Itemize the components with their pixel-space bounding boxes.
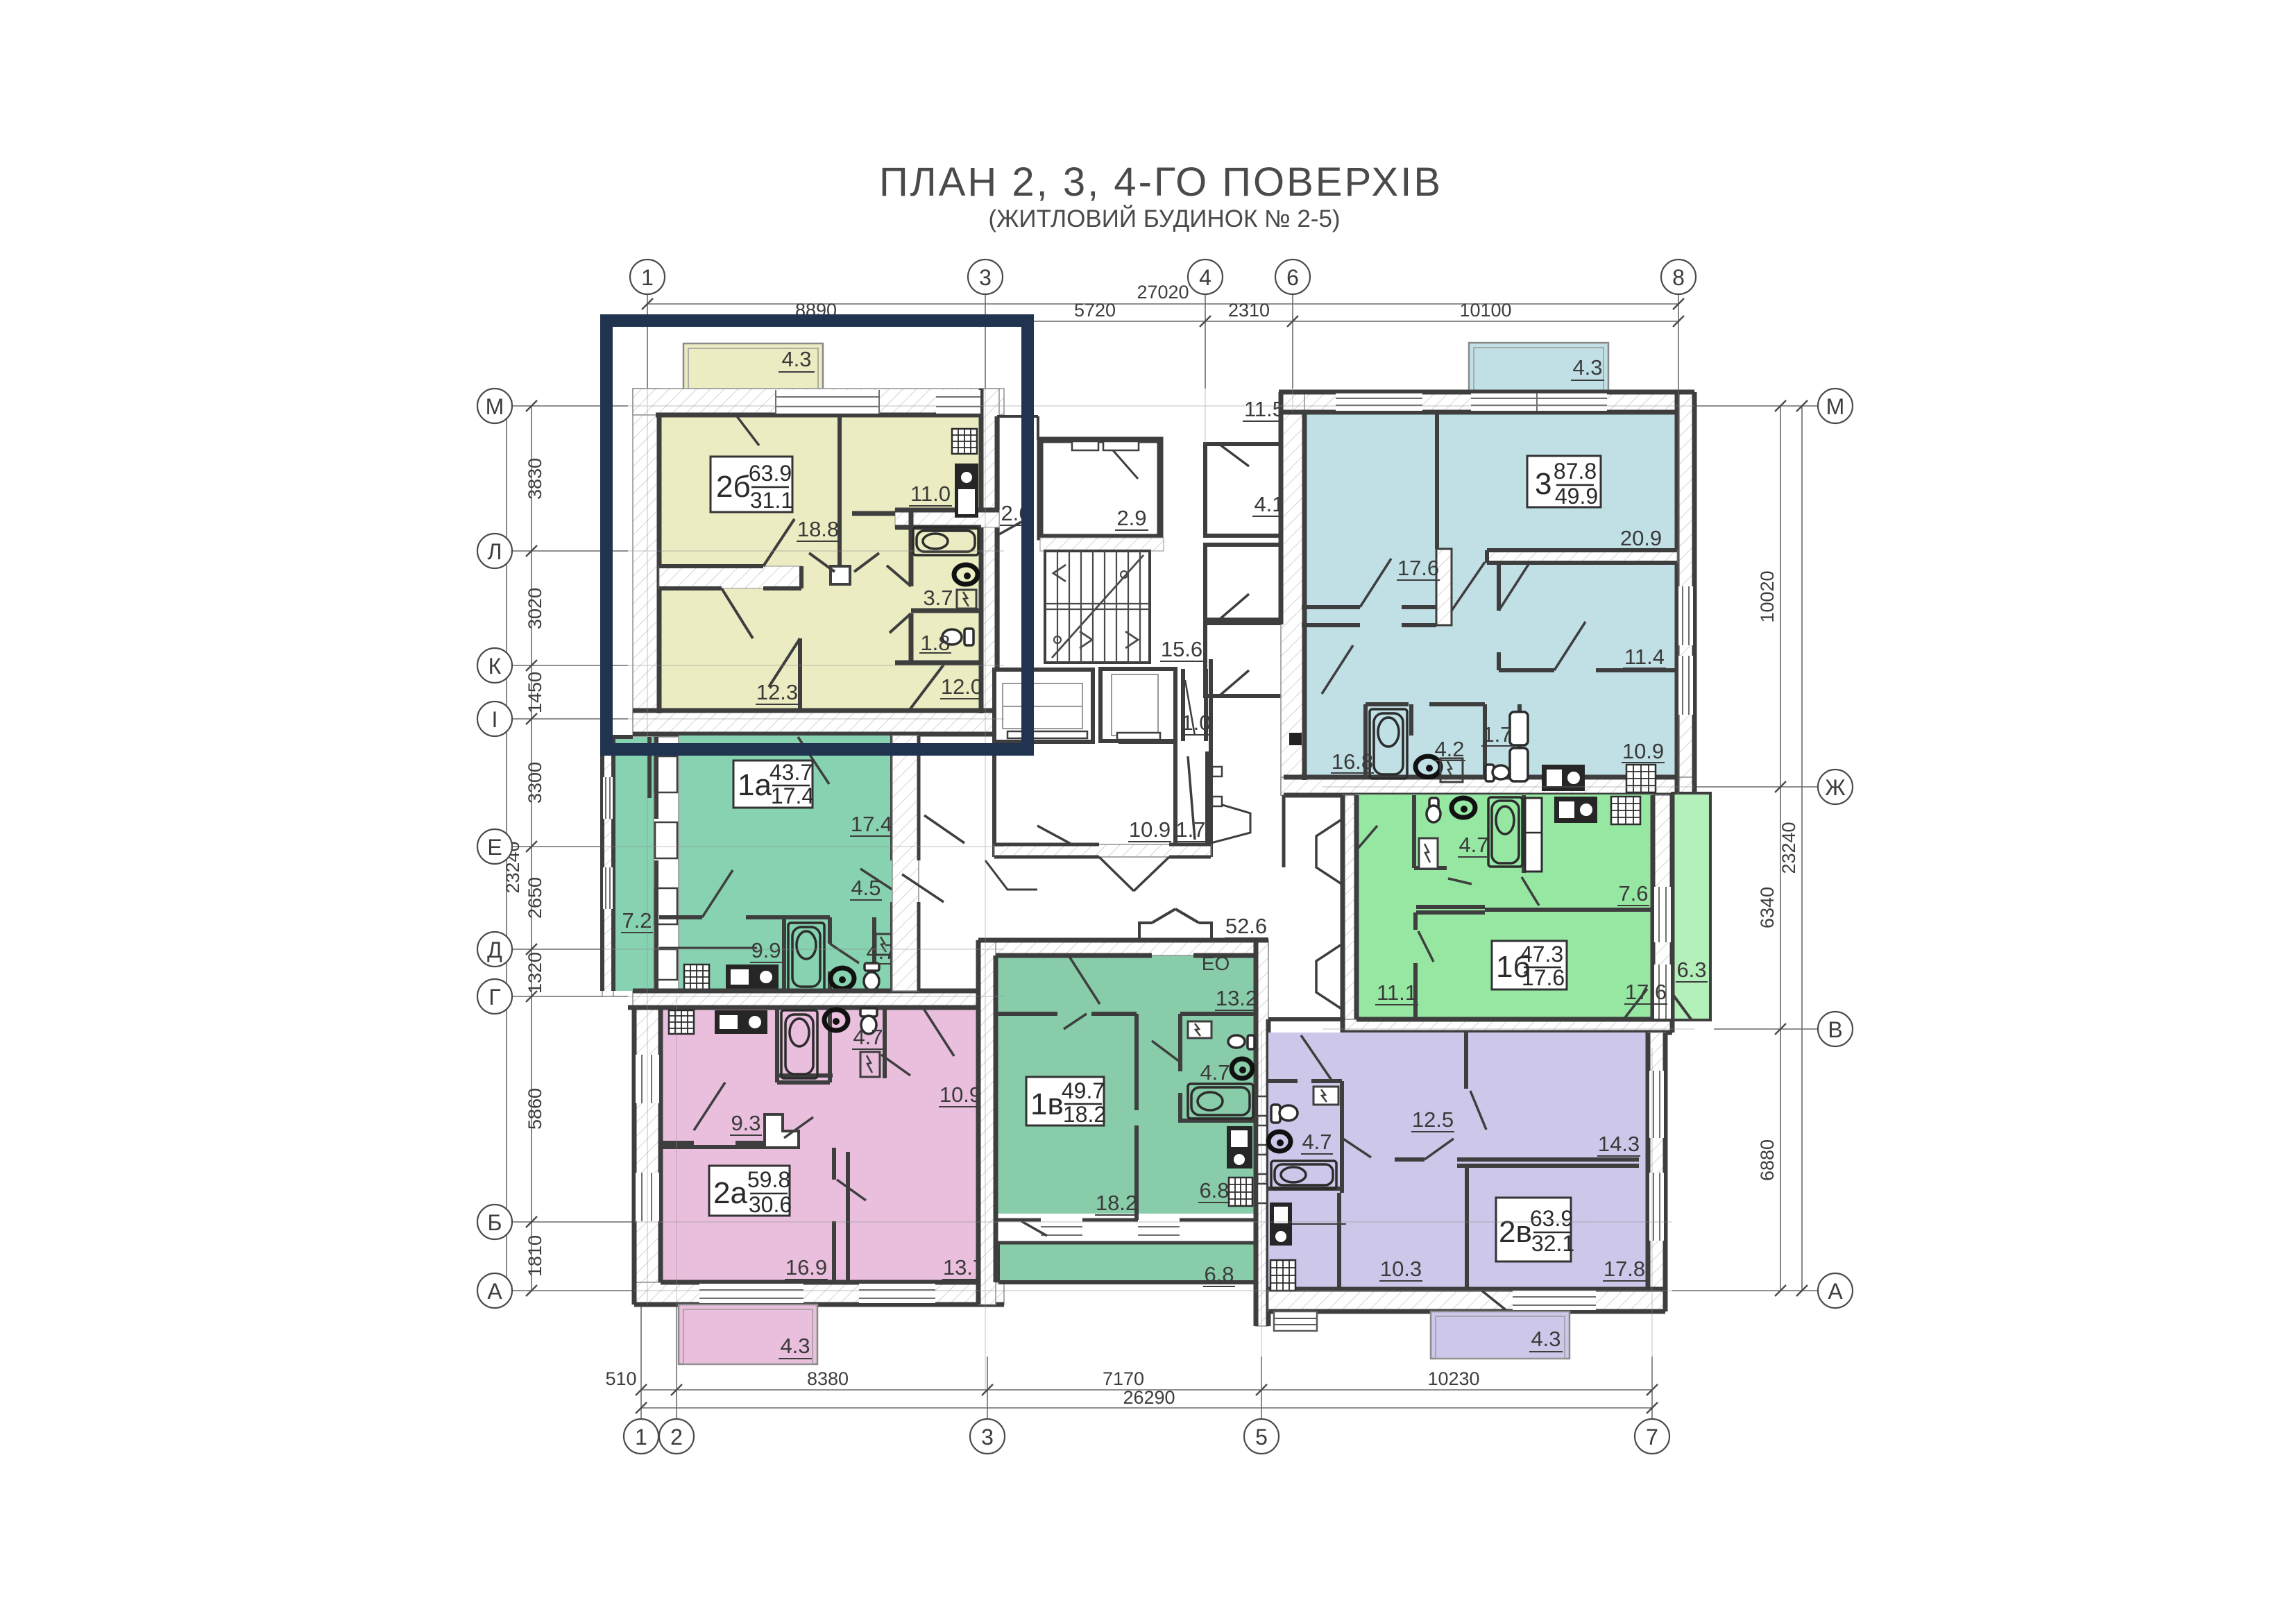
svg-text:2а: 2а	[713, 1176, 747, 1210]
svg-text:510: 510	[605, 1368, 636, 1389]
svg-text:3: 3	[981, 1425, 994, 1450]
svg-text:31.1: 31.1	[750, 488, 793, 513]
svg-text:4.7: 4.7	[1200, 1060, 1230, 1085]
svg-text:1а: 1а	[738, 768, 772, 802]
svg-text:5860: 5860	[525, 1088, 545, 1130]
svg-text:9.9: 9.9	[751, 938, 781, 962]
svg-text:1810: 1810	[525, 1235, 545, 1277]
svg-text:ЕО: ЕО	[1202, 953, 1230, 974]
svg-text:4.7: 4.7	[853, 1025, 883, 1049]
svg-text:М: М	[486, 394, 504, 419]
svg-text:7.6: 7.6	[1618, 881, 1648, 906]
svg-text:(ЖИТЛОВИЙ БУДИНОК № 2-5): (ЖИТЛОВИЙ БУДИНОК № 2-5)	[988, 205, 1340, 232]
svg-text:23240: 23240	[1778, 822, 1799, 874]
svg-text:4.3: 4.3	[781, 347, 811, 371]
svg-text:14.3: 14.3	[1598, 1132, 1640, 1156]
svg-text:27020: 27020	[1137, 282, 1189, 303]
svg-text:1.7: 1.7	[1482, 722, 1512, 747]
svg-text:52.6: 52.6	[1225, 914, 1267, 938]
svg-text:18.2: 18.2	[1096, 1191, 1137, 1215]
svg-text:17.4: 17.4	[771, 783, 814, 808]
svg-text:Л: Л	[488, 539, 502, 564]
svg-text:26290: 26290	[1123, 1387, 1175, 1408]
svg-text:І: І	[492, 707, 498, 732]
svg-text:3.7: 3.7	[923, 586, 953, 610]
svg-text:10230: 10230	[1427, 1368, 1479, 1389]
svg-text:4.3: 4.3	[780, 1334, 810, 1358]
svg-text:11.4: 11.4	[1624, 645, 1665, 669]
svg-text:А: А	[487, 1279, 502, 1304]
svg-text:63.9: 63.9	[1530, 1206, 1573, 1231]
svg-text:1.7: 1.7	[1175, 817, 1205, 842]
svg-text:12.0: 12.0	[941, 674, 983, 699]
svg-text:В: В	[1828, 1017, 1842, 1042]
svg-text:30.6: 30.6	[749, 1192, 792, 1217]
svg-text:49.9: 49.9	[1555, 484, 1598, 509]
svg-text:М: М	[1826, 394, 1845, 419]
svg-text:6.8: 6.8	[1204, 1262, 1234, 1286]
svg-text:12.3: 12.3	[756, 680, 798, 704]
svg-text:13.2: 13.2	[1216, 986, 1257, 1010]
svg-text:3: 3	[979, 265, 992, 290]
svg-text:1450: 1450	[525, 672, 545, 713]
svg-text:4.7: 4.7	[1302, 1130, 1332, 1154]
svg-text:1.0: 1.0	[1181, 711, 1211, 735]
svg-text:10.9: 10.9	[939, 1082, 981, 1107]
svg-text:Д: Д	[487, 937, 502, 962]
svg-text:5: 5	[1255, 1425, 1268, 1450]
svg-text:8: 8	[1672, 265, 1685, 290]
svg-text:63.9: 63.9	[749, 461, 792, 486]
svg-text:4.7: 4.7	[866, 940, 896, 964]
svg-text:ПЛАН 2, 3, 4-ГО ПОВЕРХІВ: ПЛАН 2, 3, 4-ГО ПОВЕРХІВ	[879, 160, 1443, 205]
svg-text:6340: 6340	[1757, 887, 1778, 928]
svg-text:43.7: 43.7	[769, 760, 813, 785]
svg-text:1в: 1в	[1030, 1087, 1064, 1121]
svg-text:Г: Г	[488, 985, 500, 1010]
svg-text:6880: 6880	[1757, 1139, 1778, 1181]
svg-text:2б: 2б	[716, 470, 751, 504]
svg-text:4: 4	[1199, 265, 1211, 290]
svg-text:4.2: 4.2	[1434, 737, 1464, 761]
svg-text:7170: 7170	[1103, 1368, 1144, 1389]
svg-text:К: К	[488, 654, 502, 679]
svg-text:9.3: 9.3	[731, 1111, 760, 1135]
svg-text:6.8: 6.8	[1199, 1178, 1229, 1203]
svg-text:Б: Б	[488, 1210, 502, 1235]
svg-text:7: 7	[1646, 1425, 1658, 1450]
svg-text:15.6: 15.6	[1161, 637, 1202, 661]
svg-text:3300: 3300	[525, 762, 545, 804]
svg-text:10.3: 10.3	[1380, 1257, 1422, 1281]
svg-text:16.9: 16.9	[785, 1255, 827, 1280]
svg-text:49.7: 49.7	[1062, 1078, 1105, 1103]
svg-text:17.6: 17.6	[1625, 980, 1667, 1004]
svg-text:1.8: 1.8	[920, 631, 950, 655]
svg-text:2в: 2в	[1499, 1215, 1532, 1249]
svg-text:Ж: Ж	[1825, 775, 1846, 800]
svg-text:6.3: 6.3	[1676, 958, 1706, 982]
svg-text:10100: 10100	[1459, 300, 1511, 321]
svg-text:12.5: 12.5	[1412, 1107, 1454, 1132]
svg-text:17.6: 17.6	[1397, 556, 1439, 580]
svg-text:20.9: 20.9	[1620, 526, 1662, 550]
svg-text:59.8: 59.8	[747, 1167, 790, 1192]
svg-text:87.8: 87.8	[1554, 459, 1597, 484]
svg-text:2.9: 2.9	[1116, 506, 1146, 530]
svg-text:11.0: 11.0	[910, 482, 951, 506]
svg-text:3: 3	[1535, 467, 1551, 501]
svg-text:17.4: 17.4	[851, 812, 892, 836]
svg-text:1: 1	[641, 265, 654, 290]
svg-text:6: 6	[1286, 265, 1299, 290]
svg-text:1320: 1320	[525, 952, 545, 994]
svg-text:10.9: 10.9	[1129, 817, 1171, 842]
svg-text:32.1: 32.1	[1531, 1231, 1574, 1256]
svg-text:А: А	[1828, 1279, 1843, 1304]
svg-text:4.3: 4.3	[1572, 355, 1602, 380]
svg-text:10020: 10020	[1757, 570, 1778, 622]
svg-text:17.8: 17.8	[1604, 1257, 1645, 1281]
svg-text:3020: 3020	[525, 588, 545, 629]
svg-text:11.5: 11.5	[1244, 397, 1284, 421]
svg-text:18.8: 18.8	[797, 517, 839, 541]
svg-text:Е: Е	[487, 835, 502, 860]
svg-text:4.7: 4.7	[1459, 833, 1488, 857]
svg-text:2310: 2310	[1228, 300, 1270, 321]
svg-text:18.2: 18.2	[1063, 1102, 1106, 1127]
svg-text:17.6: 17.6	[1522, 965, 1565, 990]
svg-text:5720: 5720	[1074, 300, 1116, 321]
svg-text:16.8: 16.8	[1332, 749, 1373, 774]
svg-text:3830: 3830	[525, 458, 545, 500]
svg-text:4.3: 4.3	[1531, 1327, 1561, 1351]
svg-text:2: 2	[670, 1425, 683, 1450]
svg-text:47.3: 47.3	[1520, 942, 1563, 967]
svg-text:4.5: 4.5	[851, 876, 881, 900]
svg-text:1: 1	[635, 1425, 647, 1450]
svg-text:8380: 8380	[807, 1368, 849, 1389]
svg-text:2650: 2650	[525, 877, 545, 919]
svg-text:10.9: 10.9	[1622, 739, 1664, 763]
svg-text:11.1: 11.1	[1377, 980, 1417, 1005]
